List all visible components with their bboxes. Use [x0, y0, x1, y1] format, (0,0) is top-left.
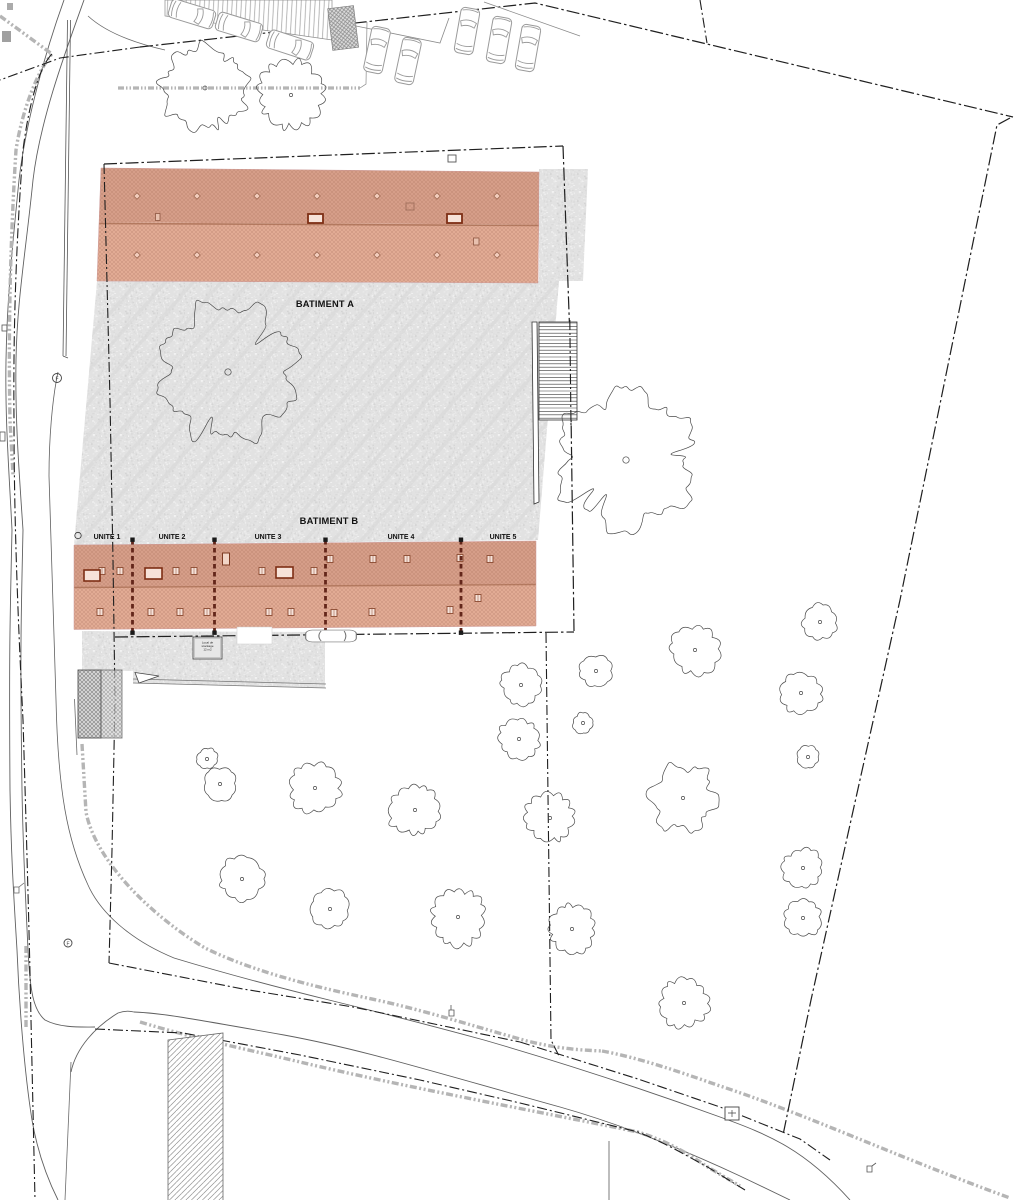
svg-text:BATIMENT B: BATIMENT B	[300, 516, 359, 526]
svg-text:UNITE 5: UNITE 5	[490, 534, 517, 541]
svg-text:F: F	[55, 377, 58, 383]
svg-text:BATIMENT A: BATIMENT A	[296, 299, 354, 309]
svg-text:UNITE 3: UNITE 3	[255, 534, 282, 541]
svg-text:F: F	[66, 942, 69, 948]
svg-text:12 m2: 12 m2	[203, 648, 212, 652]
svg-text:UNITE 1: UNITE 1	[94, 534, 121, 541]
svg-text:UNITE 4: UNITE 4	[388, 534, 415, 541]
svg-text:UNITE 2: UNITE 2	[159, 534, 186, 541]
